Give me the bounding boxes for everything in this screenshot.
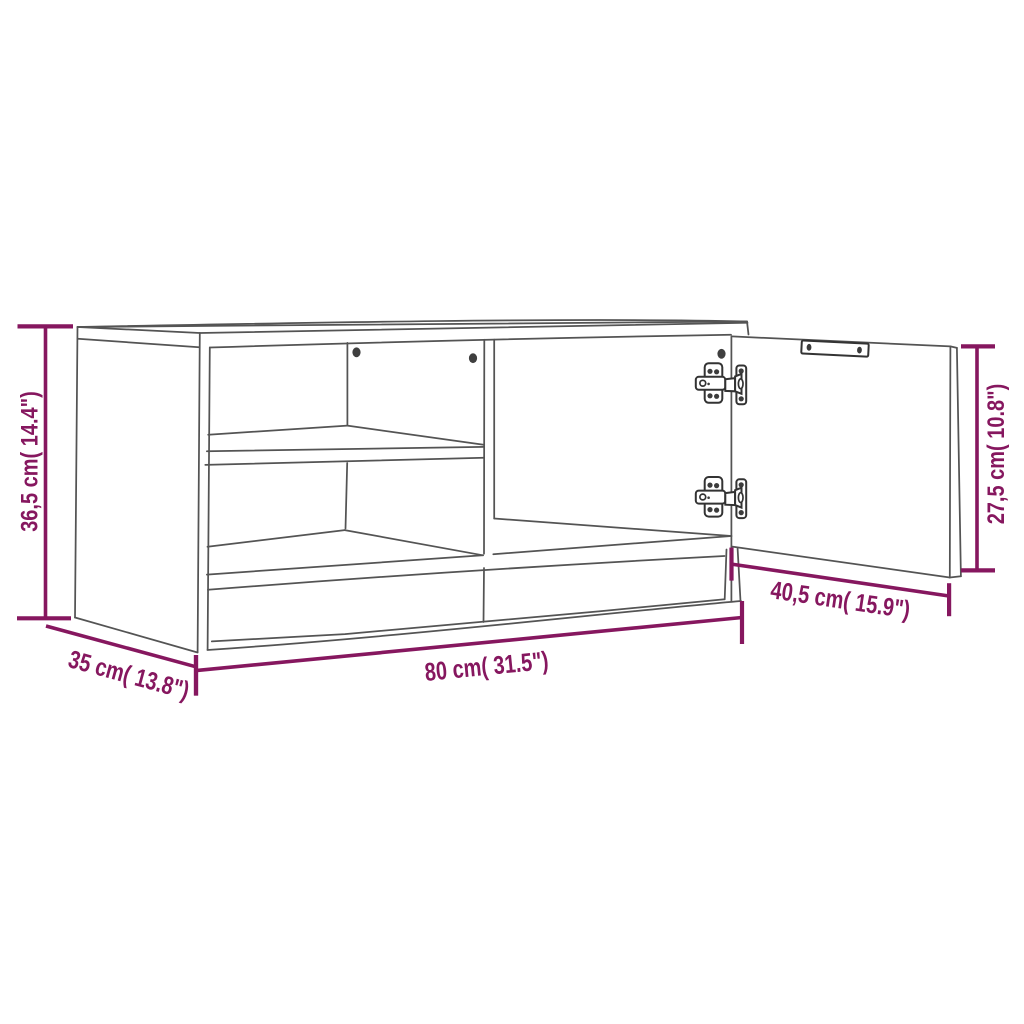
- svg-text:35 cm( 13.8"): 35 cm( 13.8"): [65, 644, 192, 704]
- svg-text:36,5 cm( 14.4"): 36,5 cm( 14.4"): [16, 391, 43, 532]
- svg-text:80 cm( 31.5"): 80 cm( 31.5"): [423, 646, 549, 687]
- svg-text:27,5 cm( 10.8"): 27,5 cm( 10.8"): [982, 384, 1009, 525]
- svg-text:40,5 cm( 15.9"): 40,5 cm( 15.9"): [769, 575, 912, 624]
